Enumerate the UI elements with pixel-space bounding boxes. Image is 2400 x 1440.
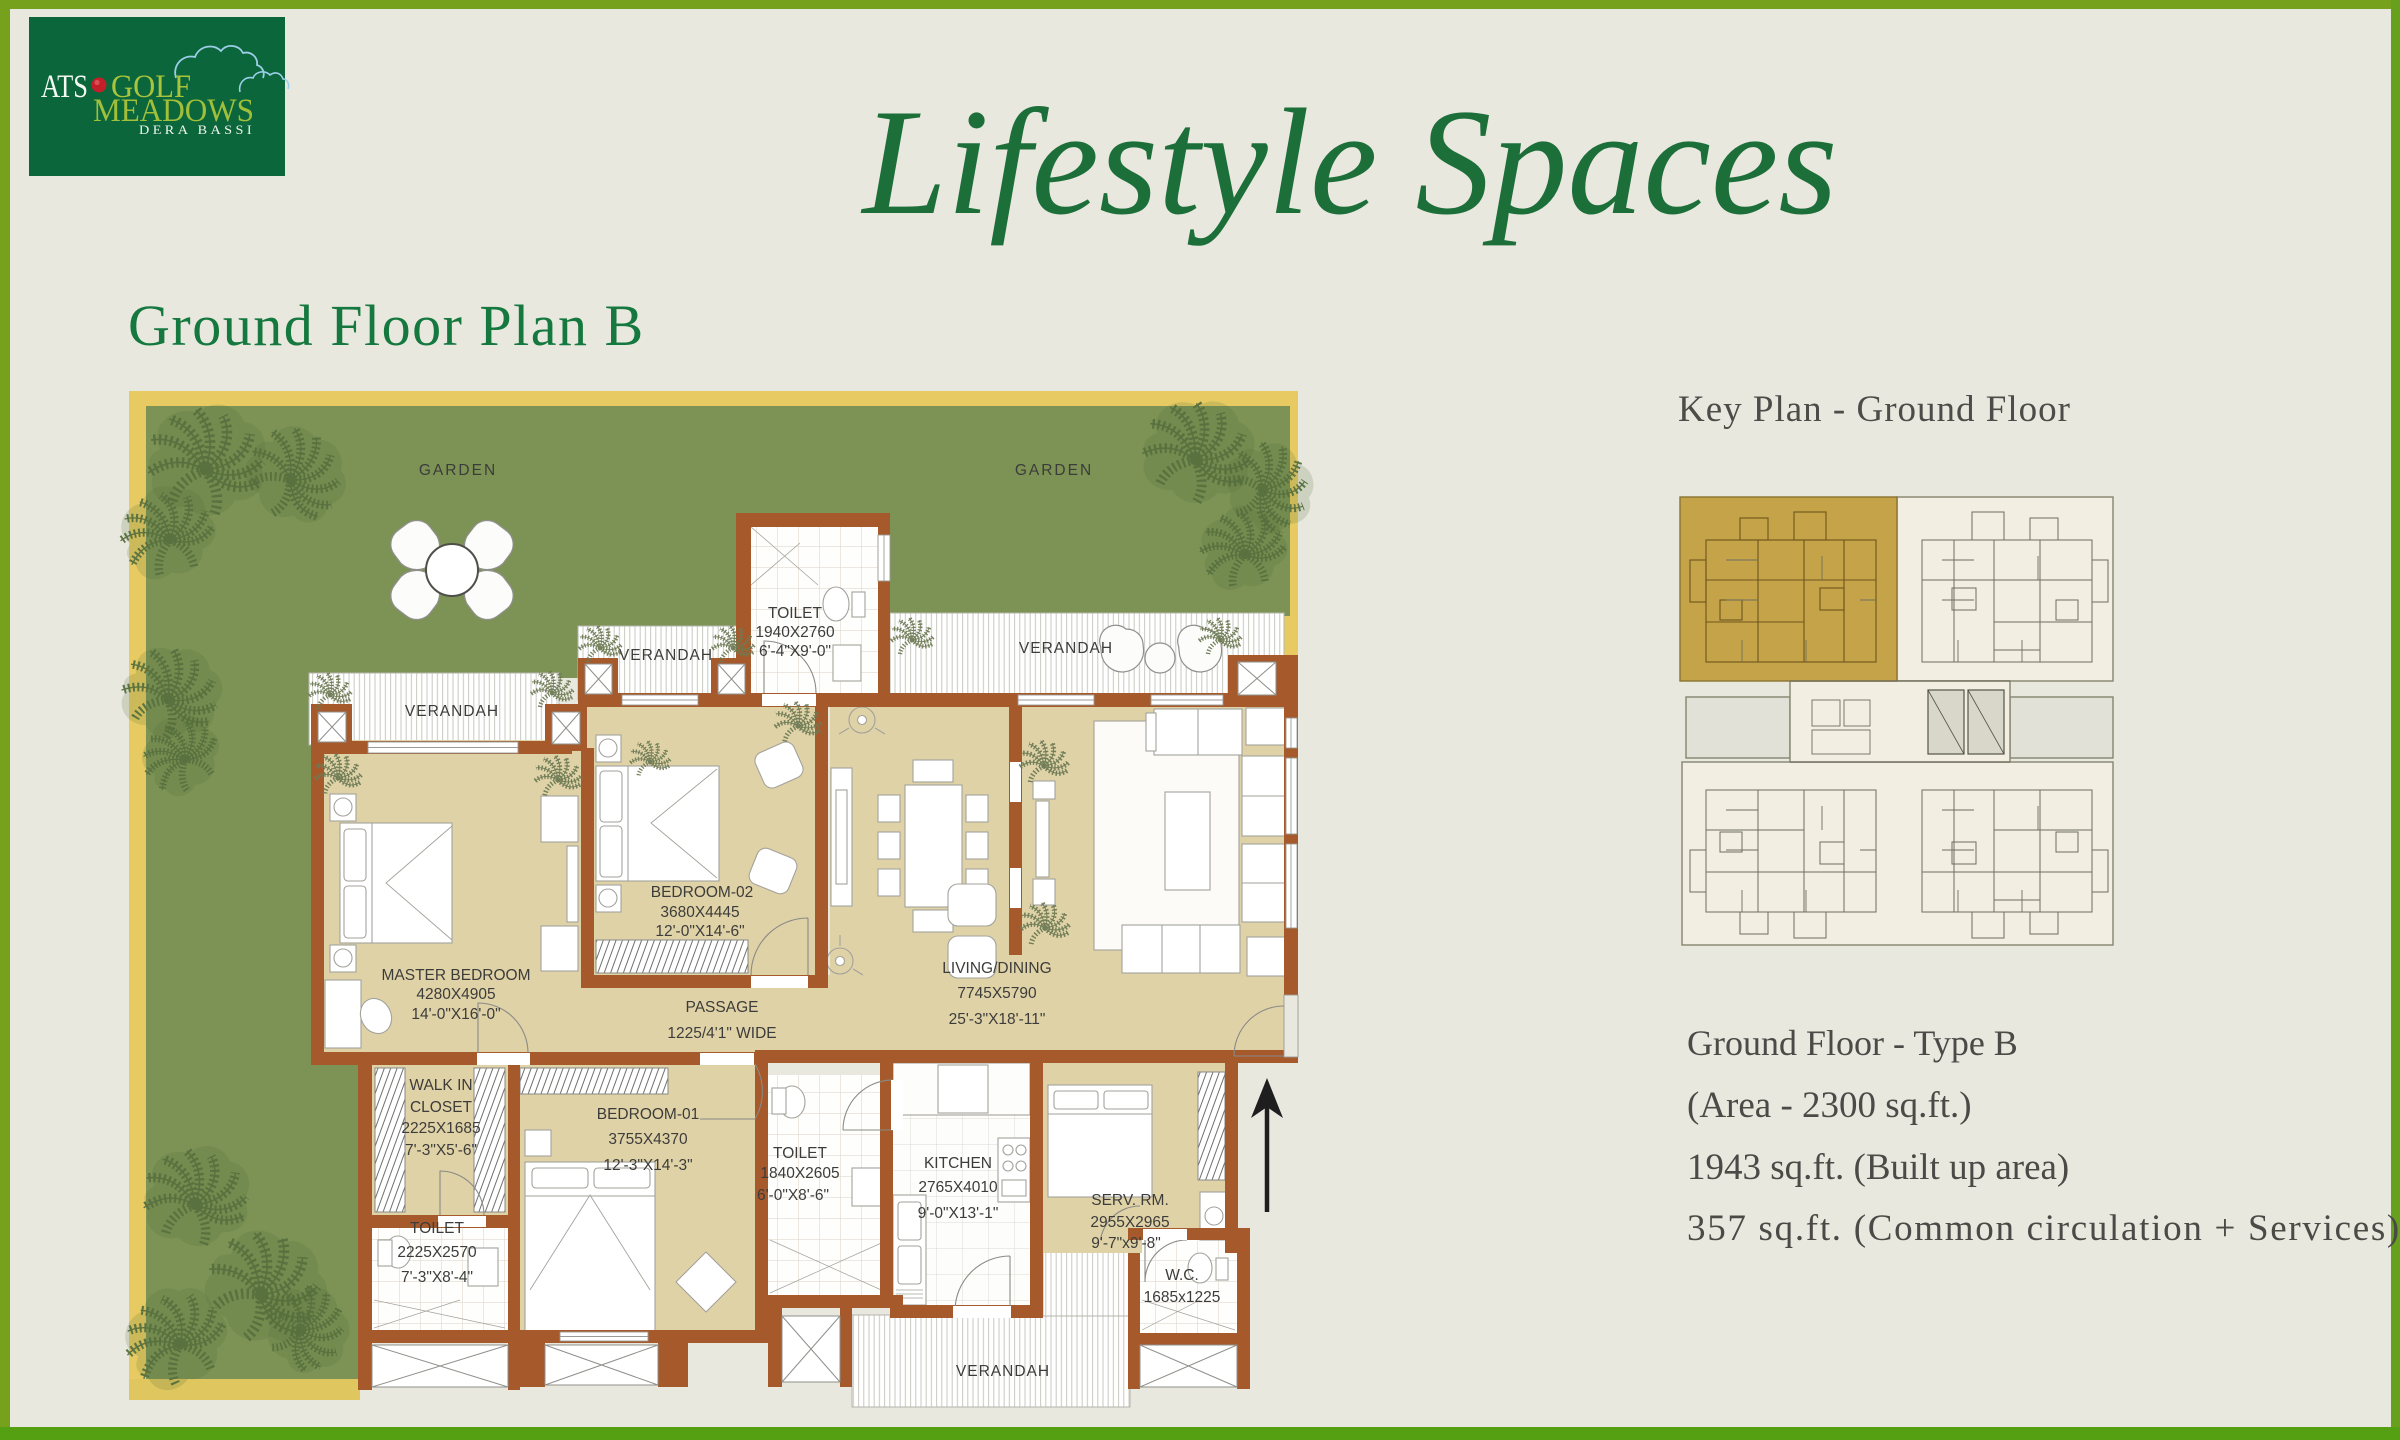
svg-text:1225/4'1" WIDE: 1225/4'1" WIDE — [667, 1025, 776, 1042]
svg-text:6'-0"X8'-6": 6'-0"X8'-6" — [757, 1187, 829, 1204]
svg-text:7745X5790: 7745X5790 — [957, 985, 1037, 1002]
svg-text:SERV. RM.: SERV. RM. — [1091, 1192, 1169, 1209]
svg-text:9'-7"x9'-8": 9'-7"x9'-8" — [1091, 1235, 1160, 1252]
svg-text:LIVING/DINING: LIVING/DINING — [942, 960, 1051, 977]
svg-text:W.C.: W.C. — [1165, 1267, 1199, 1284]
svg-text:1943 sq.ft. (Built up area): 1943 sq.ft. (Built up area) — [1687, 1147, 2069, 1188]
svg-text:357 sq.ft. (Common circulation: 357 sq.ft. (Common circulation + Service… — [1687, 1208, 2400, 1249]
svg-text:TOILET: TOILET — [768, 605, 823, 622]
svg-text:VERANDAH: VERANDAH — [405, 703, 499, 720]
svg-text:GARDEN: GARDEN — [1015, 462, 1093, 479]
svg-text:2955X2965: 2955X2965 — [1090, 1214, 1169, 1231]
svg-text:DERA BASSI: DERA BASSI — [139, 123, 255, 137]
svg-text:BEDROOM-01: BEDROOM-01 — [597, 1106, 700, 1123]
svg-text:25'-3"X18'-11": 25'-3"X18'-11" — [949, 1011, 1046, 1028]
svg-text:Key Plan - Ground Floor: Key Plan - Ground Floor — [1678, 389, 2071, 430]
svg-text:PASSAGE: PASSAGE — [686, 999, 759, 1016]
svg-text:WALK IN: WALK IN — [409, 1077, 472, 1094]
svg-text:ATS: ATS — [41, 69, 88, 105]
svg-text:CLOSET: CLOSET — [410, 1099, 473, 1116]
svg-text:MASTER BEDROOM: MASTER BEDROOM — [382, 967, 531, 984]
svg-text:2225X2570: 2225X2570 — [397, 1244, 477, 1261]
svg-text:12'-0"X14'-6": 12'-0"X14'-6" — [655, 923, 744, 940]
svg-text:TOILET: TOILET — [773, 1145, 828, 1162]
svg-text:1940X2760: 1940X2760 — [755, 624, 835, 641]
svg-text:TOILET: TOILET — [410, 1220, 465, 1237]
svg-text:9'-0"X13'-1": 9'-0"X13'-1" — [918, 1205, 999, 1222]
svg-text:1840X2605: 1840X2605 — [760, 1165, 839, 1182]
svg-text:7'-3"X5'-6": 7'-3"X5'-6" — [405, 1142, 477, 1159]
svg-text:Lifestyle Spaces: Lifestyle Spaces — [860, 78, 1837, 246]
svg-text:(Area - 2300 sq.ft.): (Area - 2300 sq.ft.) — [1687, 1085, 1972, 1126]
svg-text:2765X4010: 2765X4010 — [918, 1179, 998, 1196]
svg-text:VERANDAH: VERANDAH — [619, 647, 713, 664]
svg-text:2225X1685: 2225X1685 — [401, 1120, 480, 1137]
svg-text:GARDEN: GARDEN — [419, 462, 497, 479]
svg-text:VERANDAH: VERANDAH — [956, 1363, 1050, 1380]
svg-text:KITCHEN: KITCHEN — [924, 1155, 992, 1172]
svg-text:BEDROOM-02: BEDROOM-02 — [651, 884, 754, 901]
svg-text:12'-3"X14'-3": 12'-3"X14'-3" — [603, 1157, 692, 1174]
svg-text:6'-4"X9'-0": 6'-4"X9'-0" — [759, 643, 831, 660]
svg-text:VERANDAH: VERANDAH — [1019, 640, 1113, 657]
svg-text:7'-3"X8'-4": 7'-3"X8'-4" — [401, 1269, 473, 1286]
svg-text:3755X4370: 3755X4370 — [608, 1131, 688, 1148]
svg-text:Ground Floor - Type B: Ground Floor - Type B — [1687, 1023, 2018, 1063]
svg-text:3680X4445: 3680X4445 — [660, 904, 739, 921]
svg-text:4280X4905: 4280X4905 — [416, 986, 495, 1003]
svg-text:14'-0"X16'-0": 14'-0"X16'-0" — [411, 1006, 500, 1023]
svg-text:1685x1225: 1685x1225 — [1144, 1289, 1221, 1306]
svg-text:Ground Floor Plan B: Ground Floor Plan B — [128, 293, 645, 358]
